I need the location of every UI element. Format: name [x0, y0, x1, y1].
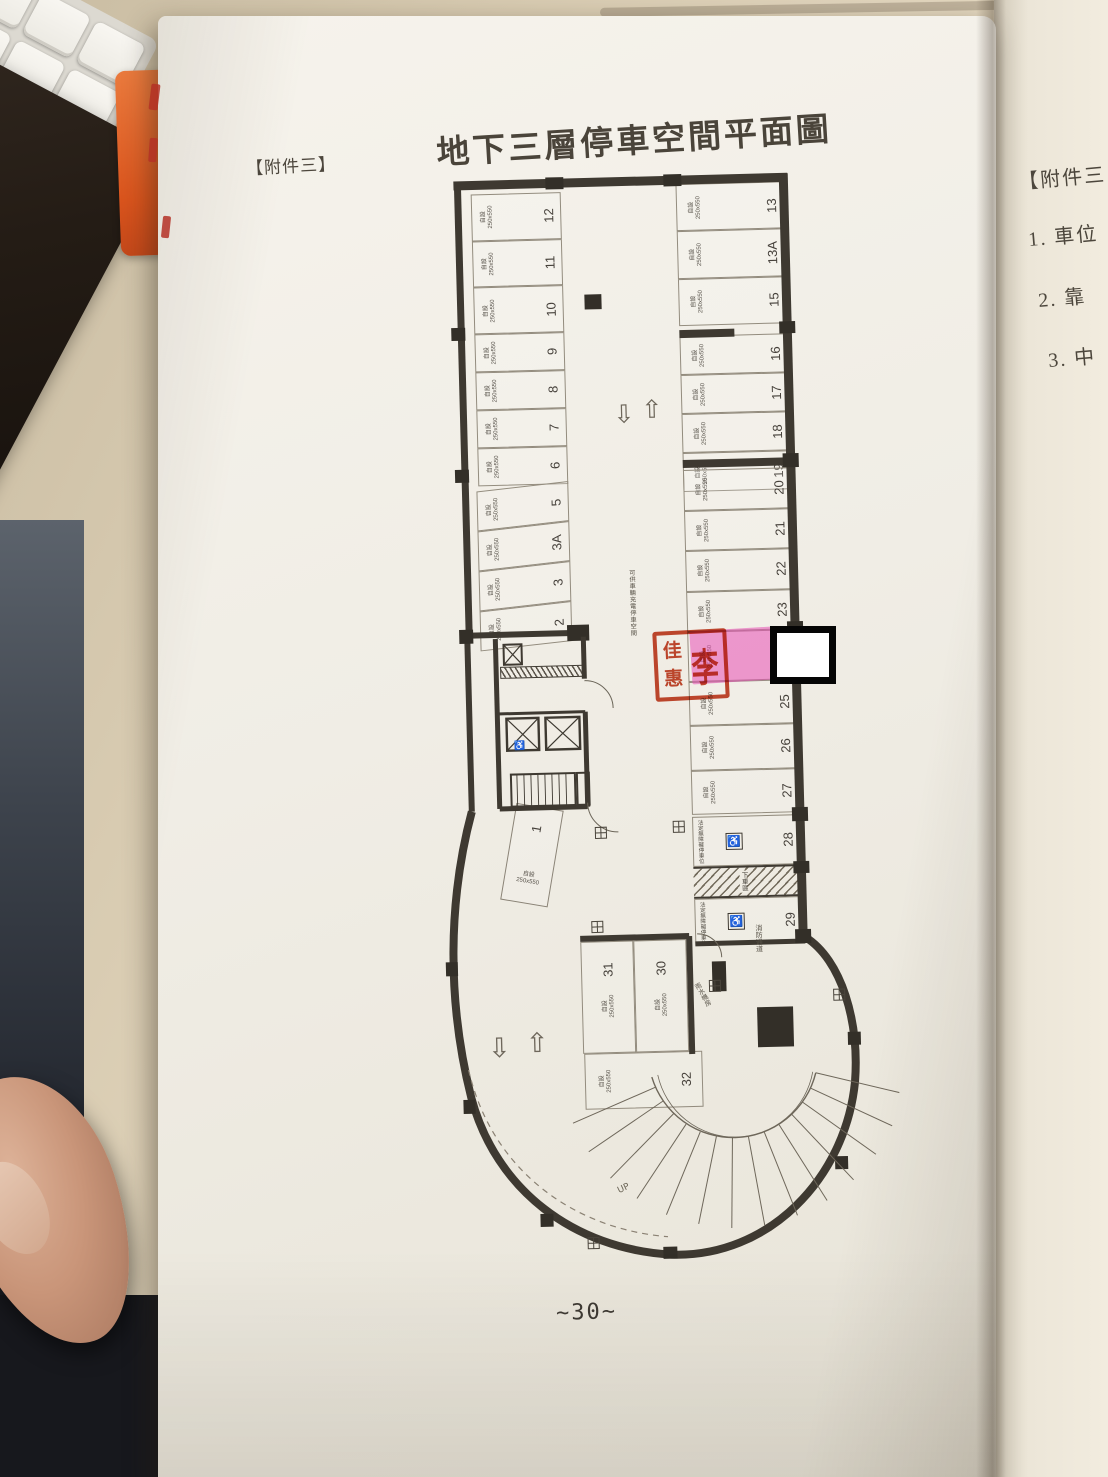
stall-number: 15: [766, 293, 781, 308]
stall-spec: 自設250x550: [484, 341, 498, 364]
stall-spec: 自設250x550: [693, 343, 707, 366]
stall-spec: 自設250x550: [487, 537, 501, 562]
stall-number: 16: [767, 346, 782, 361]
down-arrow-icon: ⇩: [488, 1035, 511, 1063]
parking-stall: 自設250x55013: [675, 181, 786, 231]
parking-stall: 自設250x55031: [580, 941, 636, 1054]
parking-stall: 自設250x55010: [473, 285, 564, 334]
stall-row-bottom: 自設250x55031自設250x55030: [580, 939, 689, 1054]
next-page-list-item: 1. 車位: [1027, 217, 1099, 252]
next-page-attachment-label: 【附件三: [1017, 158, 1107, 195]
next-page-list-item: 3. 中: [1047, 340, 1097, 373]
floor-plan-structure: ♿: [395, 159, 905, 1321]
book-gutter-shadow: [976, 0, 1006, 1477]
stall-number: 18: [769, 424, 784, 439]
stamp-characters: 佳惠: [662, 638, 686, 694]
parking-stall: 自設250x55027: [691, 768, 802, 815]
stall-spec: 自設250x550: [694, 382, 708, 405]
stall-column-right-a: 自設250x55013自設250x55013A自設250x55015: [675, 181, 789, 326]
parking-stall-32: 自設250x550 32: [584, 1051, 703, 1110]
stall-spec: 自設250x550: [698, 559, 712, 582]
stall-spec: 自設250x550: [602, 994, 616, 1017]
stall-number: 7: [547, 424, 562, 432]
stall-number: 17: [768, 385, 783, 400]
fire-lane-label: 消防通道: [755, 924, 763, 964]
stall-spec: 自設250x550: [696, 478, 710, 501]
stall-spec: 自設250x550: [655, 993, 669, 1016]
stall-spec: 自設250x550: [490, 617, 504, 642]
parking-stall: 自設250x55016: [679, 333, 790, 375]
accessible-space-label: 法定無障礙停車位: [696, 820, 703, 866]
stall-column-left-mid: 自設250x5509自設250x5508自設250x5507自設250x5506: [474, 332, 568, 486]
stall-spec: 自設250x550: [695, 421, 709, 444]
stall-spec: 自設250x550: [486, 497, 500, 522]
red-ink-mark: [148, 138, 158, 162]
stall-number: 12: [541, 208, 556, 223]
stall-spec: 自設250x550: [599, 1070, 613, 1093]
stall-number: 3: [551, 578, 566, 587]
stall-number: 25: [776, 694, 791, 709]
down-arrow-icon: ⇩: [613, 401, 635, 427]
wheelchair-icon: ♿: [728, 913, 745, 930]
parking-stall: 自設250x55012: [471, 192, 562, 241]
stall-spec: 自設250x550: [485, 379, 499, 402]
stall-number: 6: [548, 462, 563, 470]
ramp-up-label: UP: [616, 1182, 631, 1196]
stall-number: 13: [763, 198, 778, 213]
stall-spec: 自設250x550: [703, 736, 717, 759]
parking-stall: 自設250x55021: [684, 508, 795, 551]
wheelchair-icon: ♿: [514, 739, 526, 750]
stall-number: 1: [528, 824, 544, 834]
stall-number: 32: [679, 1072, 694, 1087]
stall-number: 29: [782, 912, 797, 927]
stall-number: 8: [546, 386, 561, 394]
parking-stall: 自設250x55026: [690, 723, 801, 770]
parking-stall: 自設250x55020: [683, 467, 794, 510]
attachment-label: 【附件三】: [245, 150, 336, 180]
stall-number: 27: [779, 783, 794, 798]
dropoff-hatch-zone: 下車區: [693, 864, 804, 899]
stall-number: 13A: [764, 241, 780, 265]
stall-number: 31: [600, 962, 615, 977]
stall-spec: 自設250x550: [480, 206, 494, 229]
parking-stall: 自設250x5506: [477, 446, 568, 486]
stall-spec: 自設250x550: [483, 299, 497, 322]
stall-number: 21: [772, 521, 787, 536]
hatched-wall-strip: [500, 665, 584, 679]
redaction-box: [770, 626, 836, 684]
stall-number: 5: [548, 498, 563, 507]
document-page: 【附件三】 地下三層停車空間平面圖 自設250x55012自設250x55011…: [158, 16, 996, 1477]
parking-stall: 自設250x5508: [475, 370, 566, 410]
stall-number: 23: [774, 602, 789, 617]
parking-stall-1: 1 自設250x550: [500, 803, 564, 908]
stall-spec: 自設250x550: [690, 243, 704, 266]
red-name-stamp: 李 佳惠: [652, 628, 730, 702]
parking-stall: 自設250x55013A: [677, 229, 788, 279]
stall-spec: 自設250x550: [704, 781, 718, 804]
stall-number: 28: [780, 832, 795, 847]
stall-spec: 自設250x550: [697, 519, 711, 542]
stall-number: 2: [552, 618, 567, 627]
stall-number: 22: [773, 561, 788, 576]
stall-number: 10: [544, 302, 559, 317]
elevator-icon: [506, 718, 539, 751]
stall-number: 20: [771, 480, 786, 495]
stall-spec: 自設250x550: [482, 252, 496, 275]
desk-edge-shadow: [600, 0, 1040, 17]
parking-stall: 自設250x55015: [678, 276, 789, 326]
elevator-core: [495, 637, 589, 809]
stall-column-left-top: 自設250x55012自設250x55011自設250x55010: [471, 192, 565, 334]
stall-number: 11: [542, 256, 557, 270]
stall-column-left-bottom: 自設250x5505自設250x5503A自設250x5503自設250x550…: [476, 481, 572, 651]
stall-spec: 自設250x550: [489, 577, 503, 602]
charging-space-label: 可供車輛充電停車空間: [628, 569, 636, 647]
stall-spec: 自設250x550: [699, 600, 713, 623]
up-arrow-icon: ⇧: [526, 1030, 549, 1058]
photo-of-document: 【附件三 1. 車位 2. 靠 3. 中 【附件三】 地下三層停車空間平面圖 自…: [0, 0, 1108, 1477]
parking-stall: 自設250x55011: [472, 239, 563, 288]
floor-plan: 自設250x55012自設250x55011自設250x55010 自設250x…: [395, 159, 905, 1321]
fingernail: [0, 1150, 64, 1265]
stall-number: 3A: [549, 534, 564, 552]
parking-stall: 自設250x55022: [685, 548, 796, 591]
stall-column-right-d: 自設250x55025自設250x55026自設250x55027: [688, 679, 801, 815]
parking-stall: 自設250x55018: [681, 411, 792, 453]
stall-spec: 自設250x550: [486, 417, 500, 440]
stamp-character: 李: [690, 635, 720, 693]
stall-spec: 自設250x550: [516, 870, 541, 887]
stall-spec: 自設250x550: [689, 196, 703, 219]
elevator-icon: [545, 717, 580, 750]
parking-stall: 自設250x55030: [633, 939, 689, 1052]
parking-stall-accessible-28: 法定無障礙停車位 ♿ 28: [692, 814, 803, 867]
parking-stall: 自設250x55017: [680, 372, 791, 414]
parking-stall: 自設250x5507: [476, 408, 567, 448]
next-page: 【附件三 1. 車位 2. 靠 3. 中: [994, 0, 1108, 1477]
parking-stall-accessible-29: 法定無障礙停車位 ♿ 29: [694, 896, 805, 945]
stall-spec: 自設250x550: [487, 455, 501, 478]
rainwater-room-label: 雨水機房: [692, 983, 716, 1019]
stall-number: 26: [777, 739, 792, 754]
page-number: ~30~: [556, 1299, 618, 1326]
stall-column-right-c: 自設250x55020自設250x55021自設250x55022自設250x5…: [683, 467, 797, 632]
stall-number: 9: [545, 348, 560, 356]
up-arrow-icon: ⇧: [641, 397, 663, 423]
stall-number: 30: [653, 961, 668, 976]
accessible-space-label: 法定無障礙停車位: [698, 902, 705, 948]
stairs-icon: [511, 773, 576, 807]
next-page-list-item: 2. 靠: [1037, 280, 1087, 313]
dropoff-zone-label: 下車區: [739, 871, 746, 893]
stall-spec: 自設250x550: [691, 290, 705, 313]
wheelchair-icon: ♿: [725, 833, 742, 850]
parking-stall: 自設250x5509: [474, 332, 565, 372]
